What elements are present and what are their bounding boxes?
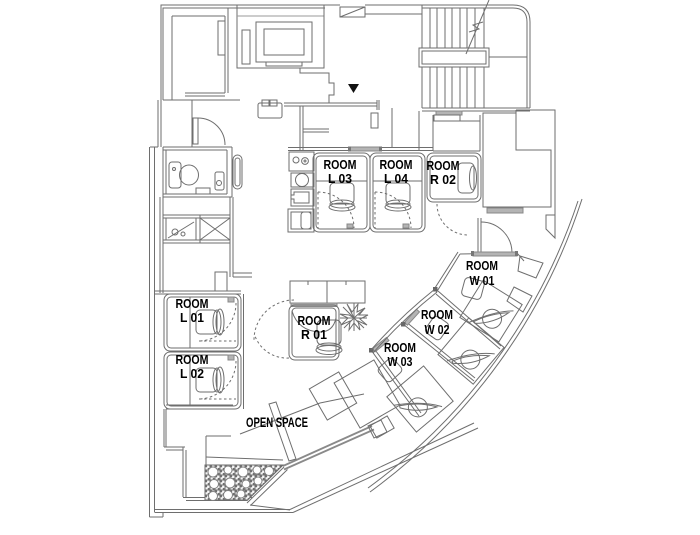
svg-text:W 03: W 03 <box>388 354 413 369</box>
svg-text:R 01: R 01 <box>301 327 327 342</box>
svg-text:ROOM: ROOM <box>324 157 357 172</box>
svg-text:L 03: L 03 <box>328 171 352 186</box>
svg-text:ROOM: ROOM <box>384 340 416 355</box>
svg-text:L 04: L 04 <box>384 171 409 186</box>
svg-text:ROOM: ROOM <box>380 157 413 172</box>
svg-text:ROOM: ROOM <box>298 313 331 328</box>
svg-text:OPEN SPACE: OPEN SPACE <box>246 414 308 430</box>
svg-text:ROOM: ROOM <box>176 352 209 367</box>
svg-text:W 01: W 01 <box>470 273 495 288</box>
svg-text:L 01: L 01 <box>180 310 204 325</box>
svg-text:R 02: R 02 <box>430 172 456 187</box>
svg-text:ROOM: ROOM <box>176 296 209 311</box>
svg-text:W 02: W 02 <box>425 322 450 337</box>
svg-text:ROOM: ROOM <box>466 258 498 273</box>
svg-text:ROOM: ROOM <box>427 158 460 173</box>
svg-text:ROOM: ROOM <box>421 307 453 322</box>
svg-text:L 02: L 02 <box>180 366 204 381</box>
